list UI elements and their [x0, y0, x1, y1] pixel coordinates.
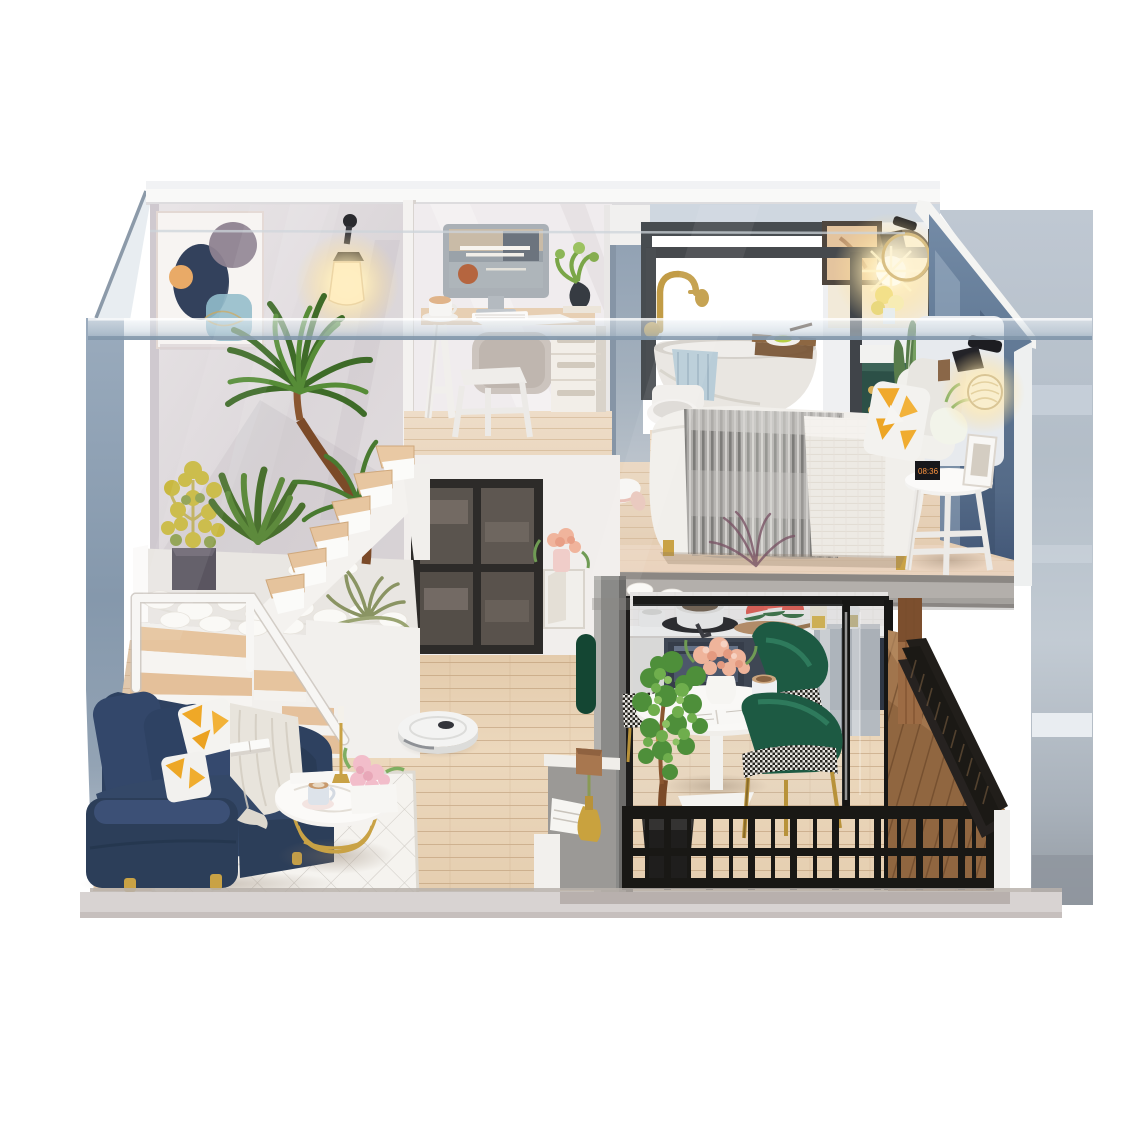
svg-text:08:36: 08:36	[918, 467, 939, 476]
